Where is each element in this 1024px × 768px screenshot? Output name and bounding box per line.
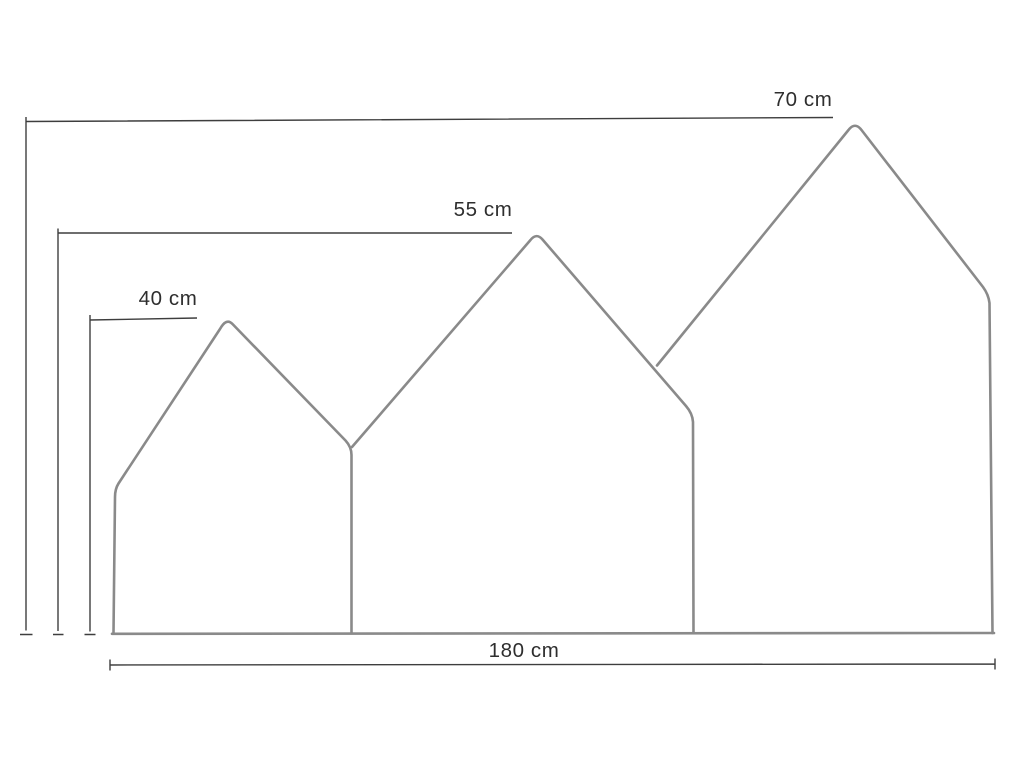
height-dimension-line-70 [20,117,833,635]
width-label-180cm: 180 cm [489,639,560,662]
height-label-55cm: 55 cm [454,198,513,221]
height-label-40cm: 40 cm [139,287,198,310]
panel-outlines [112,126,994,634]
height-dimension-line-55 [53,229,512,635]
dimension-drawing-canvas: 70 cm 55 cm 40 cm 180 cm [0,0,1024,768]
panel-bottom-edge [112,633,994,634]
headboard-dimension-diagram: 70 cm 55 cm 40 cm 180 cm [0,0,1024,768]
panel-small-outline [114,322,352,633]
height-label-70cm: 70 cm [774,88,833,111]
height-dimension-line-40 [85,315,198,635]
panel-large-outline [657,126,993,633]
panel-medium-outline [352,236,694,633]
dimension-labels: 70 cm 55 cm 40 cm 180 cm [139,88,833,662]
